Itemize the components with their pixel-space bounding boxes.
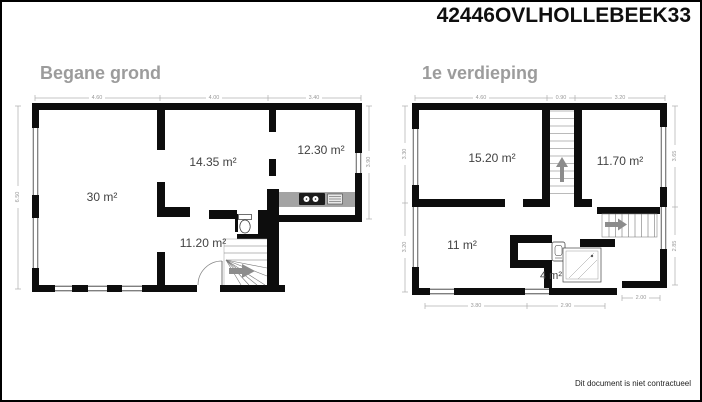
room-label-bathroom: 4 m² — [540, 270, 562, 282]
stairwell-stairs — [550, 111, 574, 194]
disclaimer-text: Dit document is niet contractueel — [575, 379, 691, 388]
window — [55, 285, 72, 292]
window — [122, 285, 142, 292]
room-label-hall: 11.20 m² — [180, 236, 226, 250]
dim-label: 3.80 — [471, 303, 482, 309]
window — [88, 285, 107, 292]
kitchen-counter — [279, 192, 355, 207]
toilet-icon — [239, 215, 252, 234]
first-floor-walls — [412, 103, 667, 295]
window — [412, 207, 419, 267]
window — [525, 288, 549, 295]
dim-label: 0.90 — [556, 95, 567, 101]
room-label-bedroom-bottom: 11 m² — [447, 238, 477, 252]
dim-label: 3.65 — [672, 151, 678, 162]
stairs — [224, 239, 267, 285]
window — [430, 288, 454, 295]
door-arc — [198, 261, 222, 285]
dim-label: 3.20 — [402, 242, 408, 253]
ground-floor-title: Begane grond — [40, 63, 161, 84]
window — [660, 207, 667, 249]
shower-icon — [563, 248, 601, 282]
dim-label: 3.30 — [402, 149, 408, 160]
room-label-bedroom-left: 15.20 m² — [468, 151, 515, 165]
window — [32, 128, 39, 195]
floorplan-document: 42446OVLHOLLEBEEK33 Begane grond 1e verd… — [0, 0, 702, 402]
dim-label: 2.00 — [636, 295, 647, 301]
window — [660, 127, 667, 187]
ground-floor-plan: 4.60 4.00 3.40 6.50 3.90 30 m² 14.35 m² … — [10, 90, 390, 325]
first-floor-title: 1e verdieping — [422, 63, 538, 84]
first-floor-plan: 4.60 0.90 3.20 3.30 3.20 3.65 2.85 — [397, 90, 702, 325]
dim-label: 6.50 — [15, 192, 21, 203]
window — [412, 129, 419, 185]
arrow-right-icon — [605, 219, 627, 231]
kitchen-sink-icon — [299, 193, 343, 205]
dim-label: 2.90 — [561, 303, 572, 309]
window — [32, 218, 39, 268]
room-label-kitchen: 12.30 m² — [297, 143, 344, 157]
room-label-bedroom-right: 11.70 m² — [597, 154, 643, 168]
dim-label: 3.20 — [615, 95, 626, 101]
window — [355, 153, 362, 173]
room-label-living: 30 m² — [87, 190, 118, 204]
dim-label: 3.40 — [309, 95, 320, 101]
dim-label: 3.90 — [366, 157, 372, 168]
room-label-middle: 14.35 m² — [189, 155, 236, 169]
dim-label: 4.60 — [92, 95, 103, 101]
dim-label: 4.00 — [209, 95, 220, 101]
dim-label: 2.85 — [672, 241, 678, 252]
dim-label: 4.60 — [476, 95, 487, 101]
corner-stairs — [602, 214, 657, 237]
document-title: 42446OVLHOLLEBEEK33 — [437, 4, 691, 28]
